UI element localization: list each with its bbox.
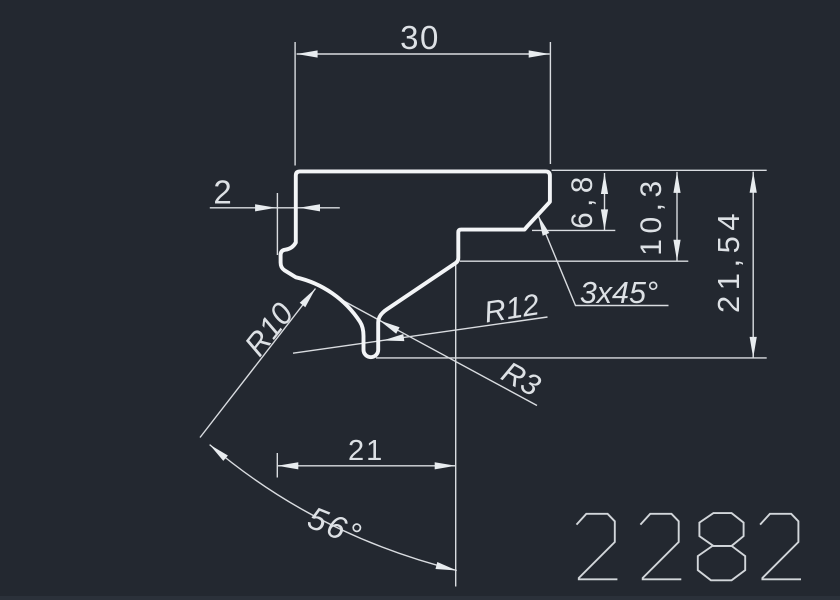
svg-text:6,8: 6,8 — [566, 171, 599, 229]
svg-text:R3: R3 — [496, 356, 546, 404]
svg-text:21: 21 — [348, 435, 384, 467]
svg-text:30: 30 — [400, 19, 440, 56]
svg-text:21,54: 21,54 — [711, 208, 746, 313]
svg-text:3x45°: 3x45° — [580, 276, 658, 310]
svg-text:2: 2 — [213, 174, 231, 211]
svg-text:56°: 56° — [303, 499, 368, 553]
svg-text:R12: R12 — [482, 288, 542, 329]
svg-text:10,3: 10,3 — [635, 175, 668, 255]
svg-text:R10: R10 — [238, 296, 301, 362]
